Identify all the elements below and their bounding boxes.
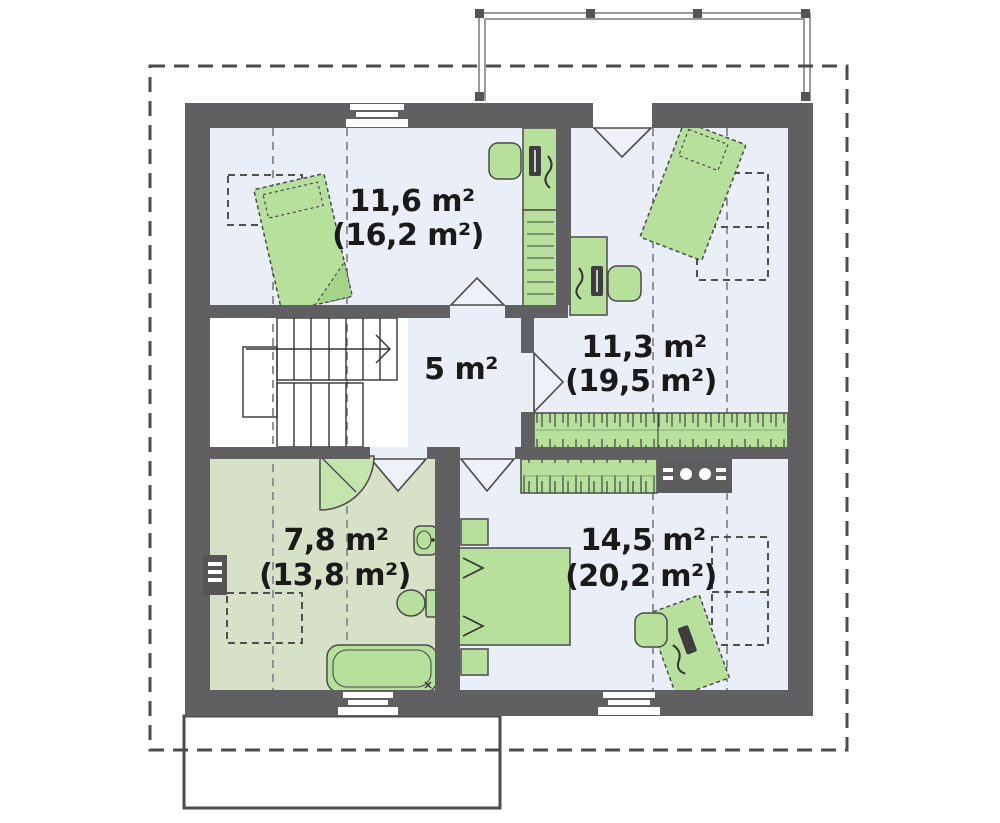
wall-bathroom-north: [210, 447, 370, 459]
balcony: [475, 9, 812, 105]
label-room-top-left-area: 11,6 m²: [349, 184, 474, 219]
chimney-shaft: [657, 457, 732, 493]
radiator: [203, 555, 227, 595]
bed-bedroom: [458, 548, 570, 645]
wall-between-top-rooms: [556, 128, 571, 305]
label-hall-area: 5 m²: [424, 352, 498, 387]
floor-plan-drawing: 11,6 m² (16,2 m²) 11,3 m² (19,5 m²) 5 m²…: [0, 0, 1000, 823]
wall-right: [788, 103, 813, 716]
washbasin: [414, 526, 437, 555]
chair-right: [608, 266, 641, 301]
wall-hall-east-upper: [521, 318, 534, 353]
balcony-floor: [477, 10, 812, 105]
label-bedroom-total: (20,2 m²): [565, 559, 717, 594]
label-bathroom-area: 7,8 m²: [284, 523, 389, 558]
wall-hall-north-stub: [505, 305, 568, 318]
wall-bathroom-corner: [427, 447, 460, 459]
wall-hall-east-lower: [521, 412, 534, 448]
nightstand: [461, 519, 488, 545]
wall-bathroom-east: [435, 459, 460, 690]
label-room-right-area: 11,3 m²: [581, 330, 706, 365]
label-room-right-total: (19,5 m²): [565, 364, 717, 399]
wall-bottom: [185, 690, 813, 716]
label-bedroom-area: 14,5 m²: [580, 523, 705, 558]
lower-roof-outline: [184, 716, 500, 808]
wall-bedroom-north: [515, 447, 788, 459]
bathtub: [327, 645, 437, 692]
tap-icon: [431, 538, 435, 542]
chair-bedroom: [635, 613, 667, 647]
floor-plan-page: 11,6 m² (16,2 m²) 11,3 m² (19,5 m²) 5 m²…: [0, 0, 1000, 823]
wall-left: [185, 128, 210, 716]
wall-hall-north: [210, 305, 450, 318]
label-room-top-left-total: (16,2 m²): [332, 218, 484, 253]
nightstand: [461, 649, 488, 675]
wardrobe-room-right: [534, 413, 788, 448]
chair-top-left: [489, 143, 521, 179]
toilet: [397, 590, 436, 617]
wardrobe-bedroom: [521, 459, 657, 493]
label-bathroom-total: (13,8 m²): [259, 558, 411, 593]
